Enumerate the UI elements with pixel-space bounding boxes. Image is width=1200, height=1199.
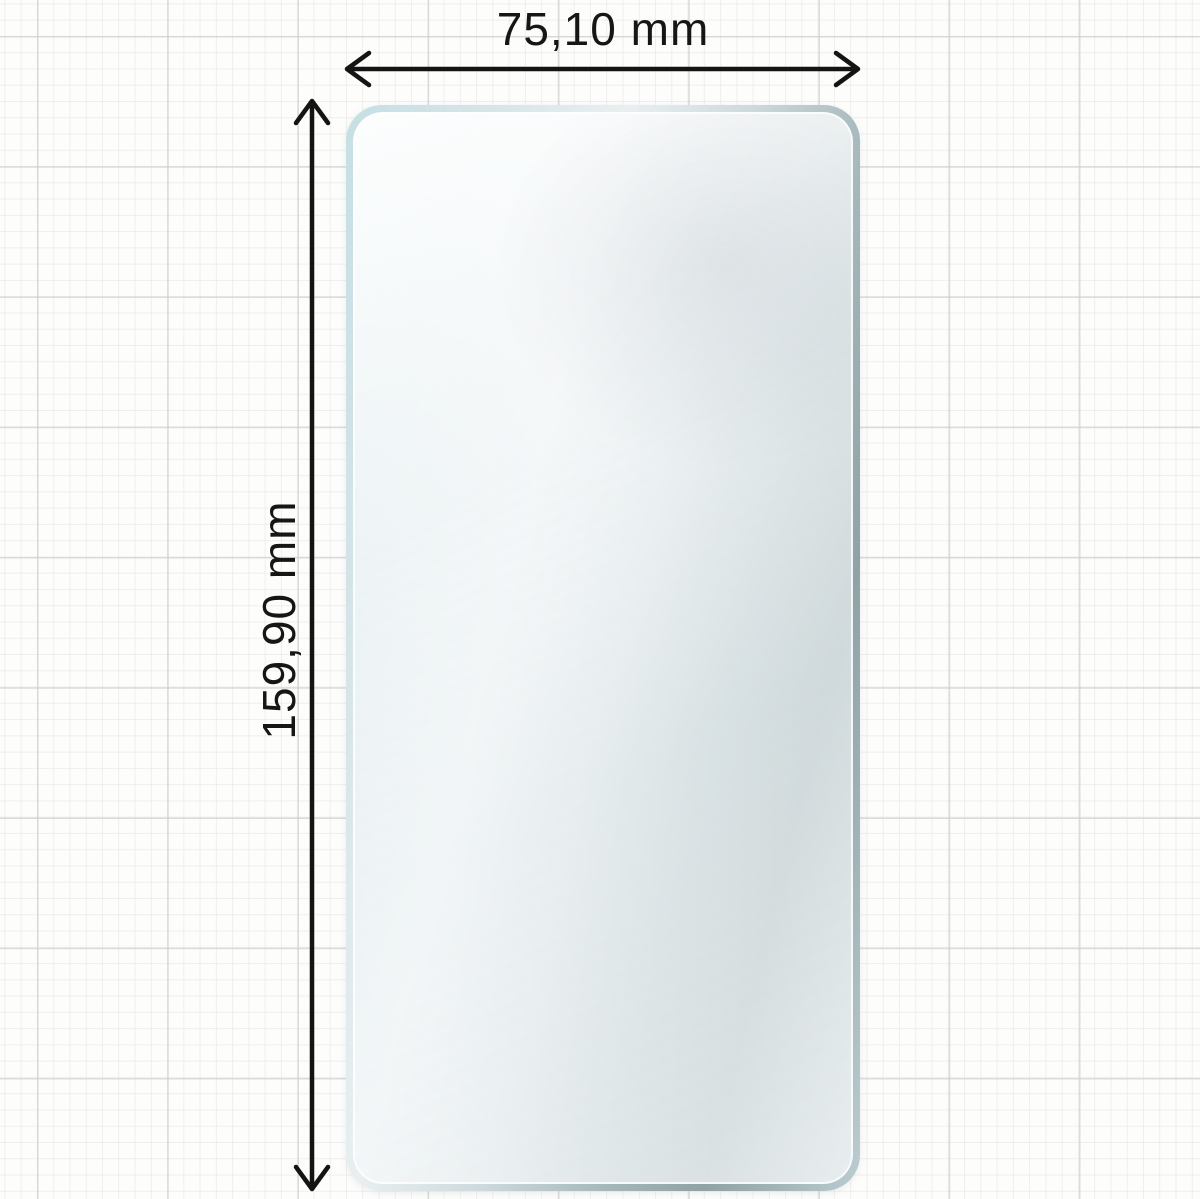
width-dimension-arrow [347, 53, 858, 85]
glass-protector-surface [353, 112, 853, 1184]
width-dimension-label: 75,10 mm [348, 2, 858, 56]
dimension-diagram: 75,10 mm 159,90 mm [0, 0, 1200, 1199]
height-dimension-label: 159,90 mm [252, 500, 306, 739]
glass-protector [346, 105, 860, 1191]
